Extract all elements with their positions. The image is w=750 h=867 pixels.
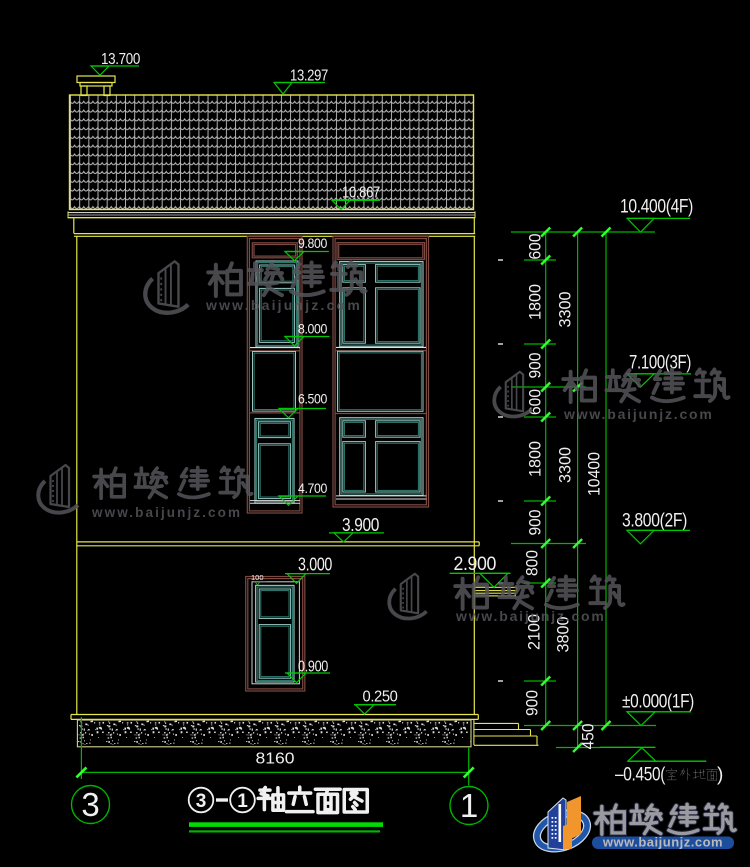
svg-text:3300: 3300 [556,447,575,483]
svg-text:8.000: 8.000 [298,321,328,337]
svg-text:900: 900 [523,690,542,716]
svg-text:900: 900 [526,353,545,379]
svg-text:3.900: 3.900 [342,514,379,535]
svg-text:www.baijunjz.com: www.baijunjz.com [563,406,714,422]
svg-text:3.800(2F): 3.800(2F) [622,511,687,532]
svg-text:www.baijunjz.com: www.baijunjz.com [91,505,242,520]
svg-text:±0.000(1F): ±0.000(1F) [622,692,694,713]
svg-text:800: 800 [523,550,542,576]
svg-text:600: 600 [526,234,545,260]
svg-text:8160: 8160 [256,751,295,768]
svg-text:3.000: 3.000 [298,555,332,575]
svg-text:2.900: 2.900 [454,554,497,575]
svg-text:900: 900 [526,510,545,536]
svg-text:6.500: 6.500 [298,391,328,407]
svg-text:3: 3 [196,791,207,812]
svg-text:10400: 10400 [585,452,604,496]
svg-text:–0.450(: –0.450( [615,765,666,786]
svg-text:0.250: 0.250 [363,689,398,706]
svg-text:10.400(4F): 10.400(4F) [620,197,693,218]
svg-text:9.800: 9.800 [298,235,328,251]
svg-text:1800: 1800 [526,284,545,320]
svg-text:3300: 3300 [556,292,575,328]
svg-text:100: 100 [251,573,264,582]
svg-text:450: 450 [579,724,598,750]
svg-text:10.867: 10.867 [342,185,380,202]
svg-text:): ) [717,765,723,786]
svg-text:www.baijunjz.com: www.baijunjz.com [455,608,606,624]
svg-text:4.700: 4.700 [298,480,328,496]
svg-text:1: 1 [460,787,478,824]
svg-text:1800: 1800 [526,441,545,477]
svg-text:1: 1 [237,791,248,812]
svg-text:www.baijunjz.com: www.baijunjz.com [205,297,362,313]
svg-text:www.baijunjz.com: www.baijunjz.com [602,835,723,850]
svg-text:3: 3 [81,786,99,823]
